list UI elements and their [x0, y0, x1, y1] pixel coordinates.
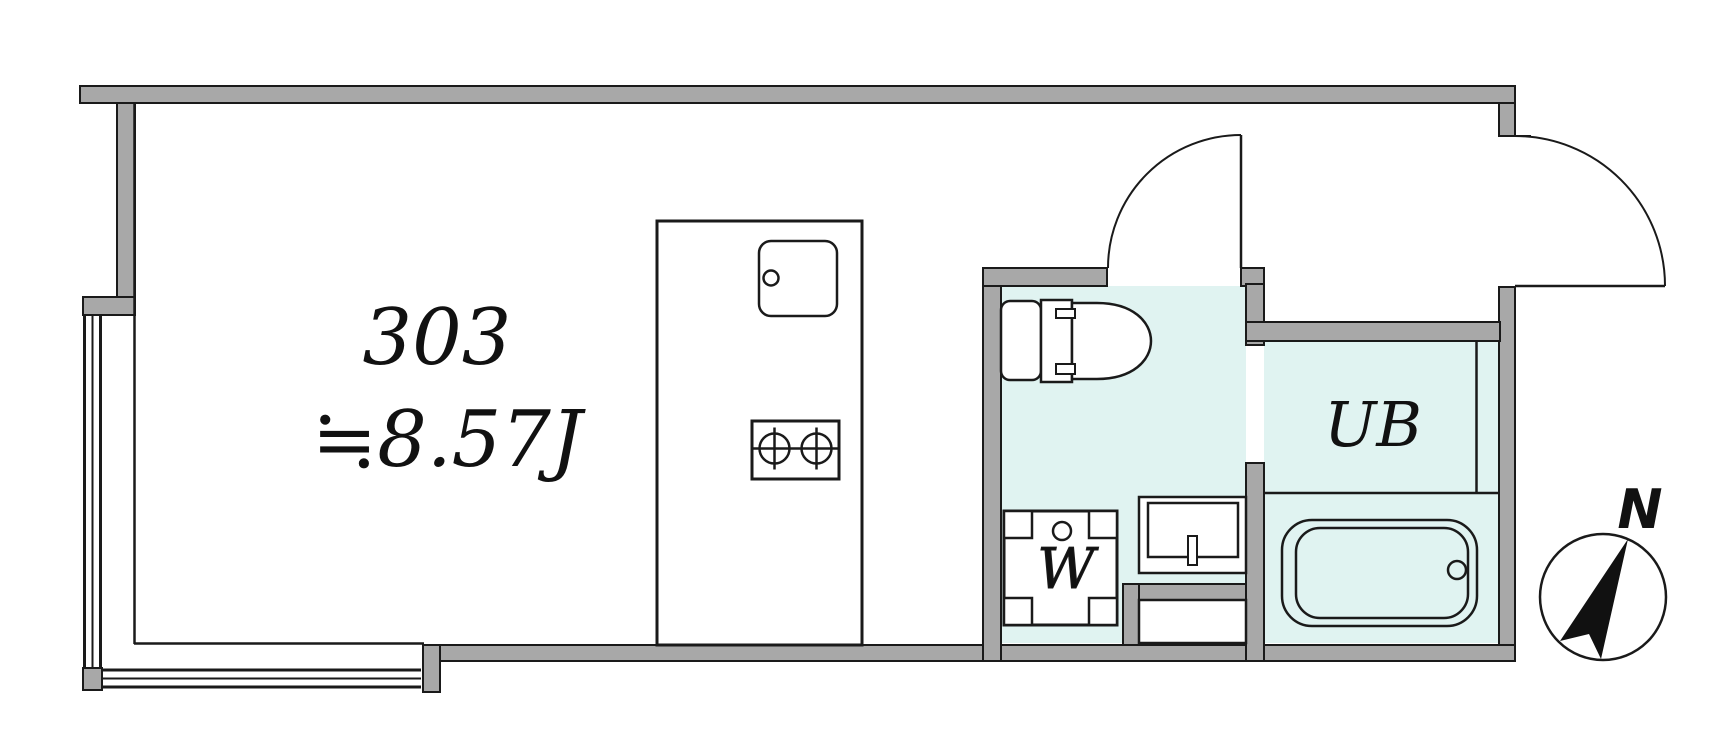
compass-needle-icon [1560, 539, 1628, 659]
washer-pan: W [1004, 511, 1117, 625]
floor-plan-canvas: W 303 ≒8.57J UB N [0, 0, 1736, 753]
toilet-door-arc [1108, 135, 1241, 268]
wall-toilet-left [983, 268, 1001, 661]
washer-pan-corner-br [1089, 598, 1117, 625]
vanity-faucet-icon [1188, 536, 1197, 565]
wall-right-upper [1499, 103, 1515, 136]
entry-door [1515, 136, 1665, 286]
compass: N [1540, 478, 1666, 660]
wall-top [80, 86, 1515, 103]
wall-bottom-step [423, 645, 440, 692]
wall-toilet-right-lower [1246, 463, 1264, 661]
sink-faucet-icon [764, 271, 779, 286]
left-window [85, 315, 101, 668]
washer-label: W [1037, 537, 1099, 602]
wall-bottom [423, 645, 1515, 661]
wall-washroom-stub-h [1123, 584, 1246, 600]
toilet-hinge-notch-bottom [1056, 364, 1075, 374]
stove [752, 421, 839, 479]
window-corner-post [83, 668, 102, 690]
toilet-tank [1001, 301, 1041, 380]
entry-door-arc [1515, 136, 1665, 286]
floor-plan: W 303 ≒8.57J UB N [0, 0, 1736, 753]
compass-north-label: N [1617, 478, 1662, 541]
wall-right-lower [1499, 287, 1515, 661]
wall-toilet-top [983, 268, 1107, 286]
toilet-hinge-notch-top [1056, 309, 1075, 318]
washer-pan-corner-tr [1089, 511, 1117, 538]
pipe-space-niche [1139, 600, 1246, 643]
washer-pan-corner-tl [1004, 511, 1032, 538]
vanity-sink [1139, 497, 1246, 573]
toilet-door [1108, 135, 1241, 268]
kitchen-counter [657, 221, 862, 645]
wall-left-step [83, 297, 135, 315]
washer-pan-corner-bl [1004, 598, 1032, 625]
wall-washroom-stub-v [1123, 584, 1139, 645]
room-number-label: 303 [363, 293, 512, 383]
wall-left-column [117, 103, 135, 297]
unit-bath-label: UB [1324, 388, 1422, 461]
toilet-fixture [1001, 300, 1151, 382]
bottom-window [102, 670, 421, 687]
wall-unit-bath-top [1246, 322, 1500, 341]
room-area-label: ≒8.57J [312, 395, 586, 485]
